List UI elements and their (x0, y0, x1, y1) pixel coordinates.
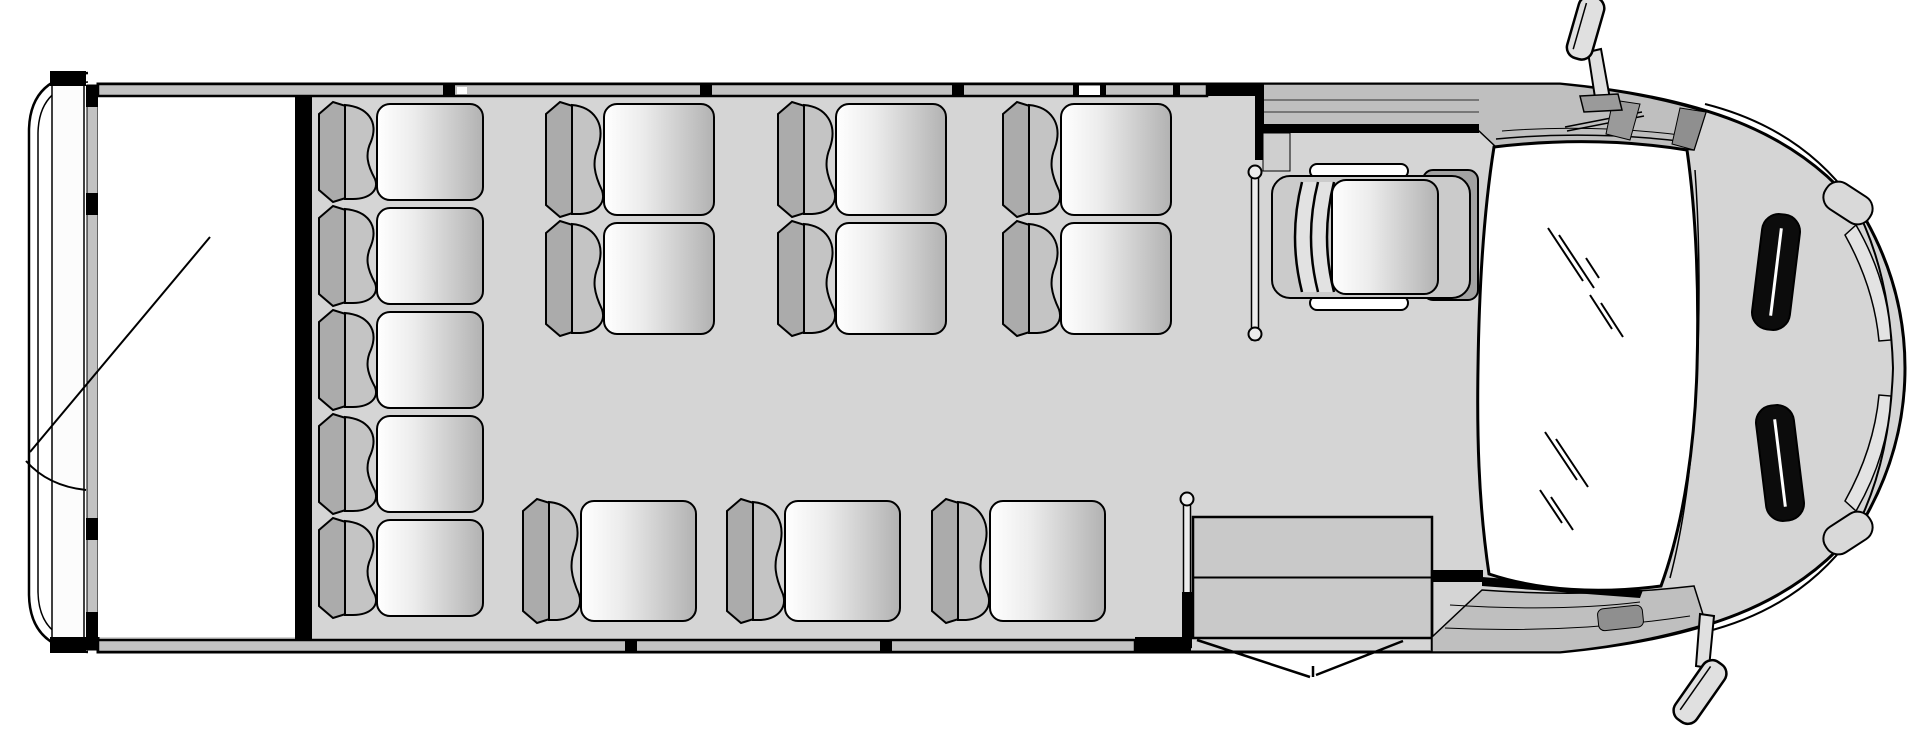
seat-cushion (836, 104, 946, 215)
window-pillar (700, 83, 712, 97)
aisle-single-3-pos-1 (932, 499, 1105, 623)
window-gap (1078, 86, 1100, 95)
aisle-single-1 (523, 499, 696, 623)
seat-cushion (377, 416, 483, 512)
wall-top (98, 84, 1207, 96)
mid-double-3-pos-2 (1003, 221, 1171, 336)
window-pillar (1173, 83, 1180, 97)
seat-cushion (377, 520, 483, 616)
aisle-single-1-pos-1 (523, 499, 696, 623)
cab-side-panel (1263, 133, 1290, 171)
rear-door-cap-top (50, 71, 86, 86)
b-pillar-top (1207, 83, 1260, 96)
window-pillar (952, 83, 964, 97)
seat-cushion (1061, 104, 1171, 215)
seat-cushion (377, 208, 483, 304)
rear-wall (295, 84, 312, 652)
windshield-glass (1478, 142, 1698, 591)
seat-cushion (990, 501, 1105, 621)
rear-bench-pos-5 (319, 518, 483, 618)
rear-bench-pos-1 (319, 102, 483, 202)
window-gap (457, 87, 467, 94)
mid-double-1-pos-1 (546, 102, 714, 217)
windshield (1478, 142, 1699, 591)
driver-seat-cushion (1332, 180, 1438, 294)
mid-double-3-pos-1 (1003, 102, 1171, 217)
rear-bench-pos-3 (319, 310, 483, 410)
aisle-single-2-pos-1 (727, 499, 900, 623)
seat-cushion (1061, 223, 1171, 334)
stanchion-cap (1181, 493, 1194, 506)
window-pillar (1073, 83, 1079, 97)
mid-double-2-pos-1 (778, 102, 946, 217)
rear-bench (319, 102, 483, 618)
step-side-trim (1432, 570, 1483, 582)
cab-top-black-rail (1263, 124, 1479, 133)
seat-cushion (604, 223, 714, 334)
fender-pocket (1597, 605, 1644, 632)
seat-cushion (377, 104, 483, 200)
rear-bench-pos-4 (319, 414, 483, 514)
rear-door-assembly (26, 71, 312, 653)
rear-door-panel (52, 73, 84, 652)
wall-bottom (98, 640, 1135, 652)
seat-cushion (785, 501, 900, 621)
stanchion-cap (1249, 328, 1262, 341)
floor-plan-canvas (0, 0, 1919, 736)
seat-cushion (604, 104, 714, 215)
window-pillar (625, 639, 637, 653)
mid-double-1-pos-2 (546, 221, 714, 336)
seat-cushion (836, 223, 946, 334)
mirror-base (1580, 94, 1622, 112)
driver-seat (1272, 164, 1470, 310)
hinge-block (86, 193, 99, 215)
stanchion-pole (1252, 167, 1259, 340)
rear-bench-pos-2 (319, 206, 483, 306)
mid-double-2-pos-2 (778, 221, 946, 336)
aisle-single-2 (727, 499, 900, 623)
stanchion-pole-dark (1182, 592, 1192, 648)
rear-compartment (98, 96, 295, 637)
window-pillar (880, 639, 892, 653)
seat-cushion (377, 312, 483, 408)
aisle-single-3 (932, 499, 1105, 623)
hinge-block (86, 518, 99, 540)
seat-cushion (581, 501, 696, 621)
window-pillar (1100, 83, 1106, 97)
rear-door-cap-bottom (50, 637, 86, 653)
rear-door-hinge-bar (87, 85, 98, 650)
stanchion-cap (1249, 166, 1262, 179)
window-pillar (443, 83, 455, 97)
